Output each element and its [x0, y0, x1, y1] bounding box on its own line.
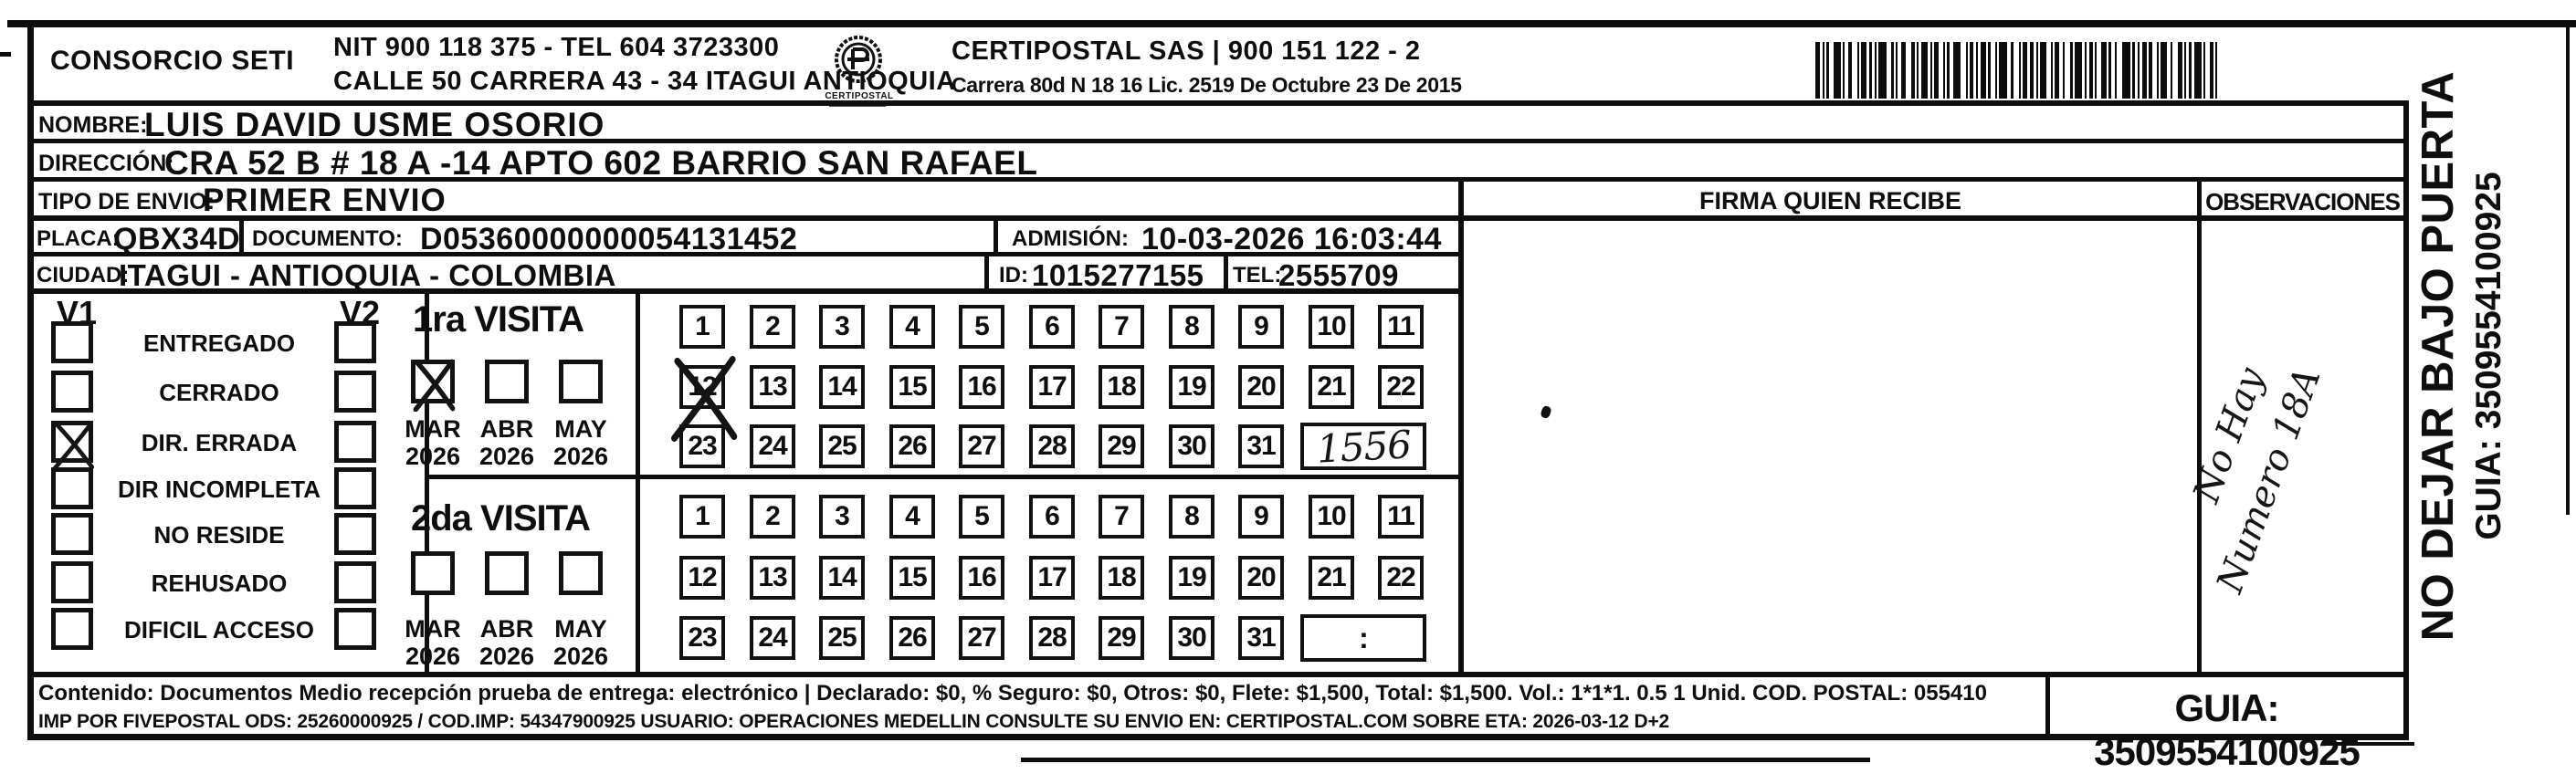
barcode-bar	[2194, 42, 2202, 99]
barcode-bar	[1901, 42, 1906, 99]
barcode-bar	[1976, 42, 1978, 99]
barcode-bar	[2184, 42, 2186, 99]
visit-month-checkbox-may	[559, 551, 603, 595]
barcode-bar	[1869, 42, 1872, 99]
barcode-bar	[1848, 42, 1852, 99]
barcode-bar	[1878, 42, 1887, 99]
barcode-bar	[2189, 42, 2192, 99]
direccion-label: DIRECCIÓN:	[38, 151, 174, 177]
visit2-title: 2da VISITA	[411, 498, 590, 539]
day-box-5: 5	[959, 305, 1004, 349]
day-box-15: 15	[889, 365, 935, 409]
visit-year-label: 2026	[394, 443, 471, 471]
barcode-bar	[2149, 42, 2152, 99]
time-colon: :	[1359, 622, 1368, 655]
admision-value: 10-03-2026 16:03:44	[1141, 222, 1442, 257]
barcode-bar	[1834, 42, 1841, 99]
status-checkbox-v1	[51, 371, 93, 413]
day-box-17: 17	[1029, 556, 1075, 600]
day-box-4: 4	[889, 305, 935, 349]
status-label: DIR INCOMPLETA	[91, 476, 347, 504]
operator-license: Carrera 80d N 18 16 Lic. 2519 De Octubre…	[952, 73, 1462, 98]
visit-month-label: ABR	[468, 415, 545, 444]
status-checkbox-v1	[51, 421, 93, 463]
day-box-12: 12	[679, 556, 725, 600]
barcode-bar	[2055, 42, 2059, 99]
day-box-18: 18	[1099, 365, 1144, 409]
barcode-bar	[1970, 42, 1973, 99]
visit-month-label: MAY	[542, 415, 619, 444]
cell-rule	[984, 252, 989, 293]
barcode-bar	[1826, 42, 1829, 99]
day-box-17: 17	[1029, 365, 1075, 409]
day-box-20: 20	[1238, 365, 1284, 409]
placa-value: QBX34D	[113, 222, 240, 257]
logo-caption: CERTIPOSTAL	[818, 91, 900, 101]
barcode-bar	[2171, 42, 2172, 99]
status-checkbox-v1	[51, 467, 93, 509]
barcode-bar	[2115, 42, 2117, 99]
barcode-bar	[2011, 42, 2013, 99]
visit-divider-rule	[425, 475, 1463, 479]
visit-month-label: MAR	[394, 615, 471, 643]
barcode-bar	[2036, 42, 2038, 99]
barcode-bar	[2075, 42, 2082, 99]
barcode-bar	[1815, 42, 1820, 99]
barcode-bar	[2030, 42, 2034, 99]
barcode-bar	[1943, 42, 1945, 99]
day-box-9: 9	[1238, 495, 1284, 539]
tipo-envio-label: TIPO DE ENVIO:	[38, 189, 215, 215]
barcode-bar	[1988, 42, 1991, 99]
barcode-bar	[2132, 42, 2135, 99]
status-checkbox-v1	[51, 608, 93, 650]
scan-artifact	[1021, 758, 1870, 762]
side-note-warning: NO DEJAR BAJO PUERTA	[2413, 64, 2464, 648]
footer-line2: IMP POR FIVEPOSTAL ODS: 25260000925 / CO…	[38, 711, 1669, 733]
documento-label: DOCUMENTO:	[252, 226, 403, 252]
day-box-30: 30	[1169, 424, 1214, 468]
day-box-16: 16	[959, 365, 1004, 409]
day-box-23: 23	[679, 616, 725, 660]
barcode-bar	[2023, 42, 2027, 99]
status-checkbox-v2	[334, 561, 376, 603]
barcode-bar	[2210, 42, 2213, 99]
day-box-14: 14	[819, 556, 865, 600]
day-box-9: 9	[1238, 305, 1284, 349]
barcode-bar	[1917, 42, 1919, 99]
barcode-bar	[2089, 42, 2093, 99]
visit-year-label: 2026	[542, 643, 619, 671]
day-box-21: 21	[1309, 556, 1354, 600]
day-box-19: 19	[1169, 365, 1214, 409]
barcode-bar	[2085, 42, 2087, 99]
barcode-bar	[1999, 42, 2007, 99]
day-box-10: 10	[1309, 495, 1354, 539]
footer-top-rule	[27, 672, 2408, 677]
day-box-20: 20	[1238, 556, 1284, 600]
status-checkbox-v1	[51, 513, 93, 555]
barcode-bar	[2161, 42, 2167, 99]
barcode-bar	[1921, 42, 1928, 99]
day-box-5: 5	[959, 495, 1004, 539]
day-box-16: 16	[959, 556, 1004, 600]
day-box-22: 22	[1378, 365, 1424, 409]
day-box-7: 7	[1099, 305, 1144, 349]
handwritten-x-mark	[411, 359, 458, 412]
day-box-27: 27	[959, 424, 1004, 468]
status-label: CERRADO	[91, 379, 347, 407]
barcode-bar	[1861, 42, 1866, 99]
day-box-13: 13	[750, 556, 795, 600]
firma-header: FIRMA QUIEN RECIBE	[1464, 187, 2197, 215]
barcode-bar	[2215, 42, 2217, 99]
barcode-bar	[1966, 42, 1968, 99]
left-border	[27, 20, 34, 740]
day-box-11: 11	[1378, 305, 1424, 349]
day-box-4: 4	[889, 495, 935, 539]
status-checkbox-v2	[334, 513, 376, 555]
admision-label: ADMISIÓN:	[1012, 226, 1129, 252]
status-checkbox-v1	[51, 321, 93, 363]
day-box-18: 18	[1099, 556, 1144, 600]
barcode-bar	[1891, 42, 1894, 99]
day-box-3: 3	[819, 305, 865, 349]
barcode-bar	[2122, 42, 2130, 99]
ciudad-value: ITAGUI - ANTIOQUIA - COLOMBIA	[119, 258, 616, 293]
observaciones-header: OBSERVACIONES	[2202, 188, 2403, 216]
day-box-29: 29	[1099, 424, 1144, 468]
day-box-19: 19	[1169, 556, 1214, 600]
barcode-bar	[2142, 42, 2147, 99]
day-box-31: 31	[1238, 424, 1284, 468]
barcode-bar	[2101, 42, 2107, 99]
barcode-bar	[2203, 42, 2205, 99]
visit-month-checkbox-abr	[485, 551, 529, 595]
operator-name: CERTIPOSTAL SAS | 900 151 122 - 2	[952, 37, 1421, 67]
guia-number: GUIA: 3509554100925	[2050, 686, 2403, 774]
day-box-6: 6	[1029, 305, 1075, 349]
visit-month-label: ABR	[468, 615, 545, 643]
day-box-24: 24	[750, 424, 795, 468]
tel-label: TEL:	[1233, 263, 1281, 288]
day-box-24: 24	[750, 616, 795, 660]
visit-month-label: MAY	[542, 615, 619, 643]
scan-artifact	[0, 52, 11, 57]
day-box-7: 7	[1099, 495, 1144, 539]
day-box-25: 25	[819, 616, 865, 660]
day-box-14: 14	[819, 365, 865, 409]
company-name: CONSORCIO SETI	[50, 46, 294, 77]
barcode-bar	[1896, 42, 1898, 99]
day-box-25: 25	[819, 424, 865, 468]
visit-year-label: 2026	[468, 443, 545, 471]
visit-month-label: MAR	[394, 415, 471, 444]
documento-value: D05360000000054131452	[420, 222, 797, 257]
firma-left-rule	[1458, 177, 1464, 676]
direccion-value: CRA 52 B # 18 A -14 APTO 602 BARRIO SAN …	[164, 144, 1037, 183]
barcode-bar	[2040, 42, 2046, 99]
cell-rule	[994, 215, 998, 256]
visit-month-checkbox-mar	[411, 360, 455, 403]
day-box-28: 28	[1029, 424, 1075, 468]
day-box-1: 1	[679, 305, 725, 349]
day-box-26: 26	[889, 424, 935, 468]
logo-subline	[829, 104, 886, 107]
day-box-29: 29	[1099, 616, 1144, 660]
scanned-delivery-slip: { "header": { "company": "CONSORCIO SETI…	[0, 0, 2576, 765]
barcode-bar	[1911, 42, 1915, 99]
visit1-title: 1ra VISITA	[413, 299, 584, 340]
cell-rule	[1224, 252, 1228, 293]
visit-label-divider-rule	[636, 288, 640, 676]
day-box-21: 21	[1309, 365, 1354, 409]
day-box-28: 28	[1029, 616, 1075, 660]
status-checkbox-v2	[334, 608, 376, 650]
day-box-8: 8	[1169, 305, 1214, 349]
nombre-value: LUIS DAVID USME OSORIO	[144, 106, 605, 144]
tel-value: 2555709	[1278, 258, 1399, 293]
barcode-bar	[2108, 42, 2111, 99]
status-checkbox-v1	[51, 561, 93, 603]
barcode-bar	[2051, 42, 2053, 99]
day-box-3: 3	[819, 495, 865, 539]
visit-year-label: 2026	[542, 443, 619, 471]
barcode-bar	[1981, 42, 1986, 99]
right-border	[2403, 100, 2409, 740]
day-box-30: 30	[1169, 616, 1214, 660]
side-note: NO DEJAR BAJO PUERTA GUIA: 3509554100925	[2413, 64, 2518, 648]
status-checkbox-v2	[334, 321, 376, 363]
barcode-bar	[1843, 42, 1845, 99]
status-checkbox-v2	[334, 467, 376, 509]
barcode-bar	[2157, 42, 2159, 99]
top-rule	[7, 20, 2576, 27]
ink-speck	[1540, 405, 1552, 419]
company-nit-tel: NIT 900 118 375 - TEL 604 3723300	[333, 33, 779, 63]
tipo-envio-value: PRIMER ENVIO	[203, 183, 447, 219]
visit-month-checkbox-may	[559, 360, 603, 403]
visit-time-box: :	[1300, 614, 1426, 662]
barcode-bar	[1857, 42, 1859, 99]
barcode-bar	[1930, 42, 1932, 99]
barcode-bar	[2019, 42, 2021, 99]
barcode-bar	[1934, 42, 1939, 99]
visit-month-checkbox-mar	[411, 551, 455, 595]
shipment-barcode	[1815, 42, 2228, 99]
day-box-8: 8	[1169, 495, 1214, 539]
day-box-6: 6	[1029, 495, 1075, 539]
status-label: DIR. ERRADA	[91, 429, 347, 457]
status-label: REHUSADO	[91, 570, 347, 598]
barcode-bar	[1823, 42, 1824, 99]
day-box-13: 13	[750, 365, 795, 409]
visit-year-label: 2026	[468, 643, 545, 671]
barcode-bar	[2063, 42, 2065, 99]
handwritten-time: 1556	[1315, 422, 1411, 471]
day-box-27: 27	[959, 616, 1004, 660]
id-label: ID:	[999, 263, 1028, 288]
day-box-23: 23	[679, 424, 725, 468]
visit-time-box: 1556	[1300, 423, 1426, 470]
status-label: NO RESIDE	[91, 521, 347, 549]
barcode-bar	[2095, 42, 2097, 99]
barcode-bar	[2070, 42, 2073, 99]
observaciones-left-rule	[2197, 177, 2202, 676]
id-value: 1015277155	[1032, 258, 1204, 293]
status-checkbox-v2	[334, 371, 376, 413]
day-box-2: 2	[750, 305, 795, 349]
day-box-1: 1	[679, 495, 725, 539]
barcode-bar	[2138, 42, 2140, 99]
visit-month-checkbox-abr	[485, 360, 529, 403]
barcode-bar	[1995, 42, 1997, 99]
barcode-bar	[1875, 42, 1877, 99]
certipostal-logo-icon	[829, 33, 888, 89]
footer-line1: Contenido: Documentos Medio recepción pr…	[38, 681, 1987, 706]
status-checkbox-v2	[334, 421, 376, 463]
barcode-bar	[1947, 42, 1950, 99]
day-box-2: 2	[750, 495, 795, 539]
barcode-bar	[2178, 42, 2182, 99]
nombre-label: NOMBRE:	[38, 112, 147, 139]
scan-artifact	[2566, 22, 2570, 515]
day-box-31: 31	[1238, 616, 1284, 660]
side-note-guia: GUIA: 3509554100925	[2469, 64, 2509, 648]
day-box-10: 10	[1309, 305, 1354, 349]
status-label: ENTREGADO	[91, 329, 347, 358]
ciudad-label: CIUDAD:	[37, 263, 129, 288]
day-box-22: 22	[1378, 556, 1424, 600]
barcode-bar	[1953, 42, 1961, 99]
day-box-26: 26	[889, 616, 935, 660]
day-box-11: 11	[1378, 495, 1424, 539]
status-label: DIFICIL ACCESO	[91, 616, 347, 644]
visit-year-label: 2026	[394, 643, 471, 671]
day-box-15: 15	[889, 556, 935, 600]
placa-label: PLACA:	[37, 226, 120, 252]
